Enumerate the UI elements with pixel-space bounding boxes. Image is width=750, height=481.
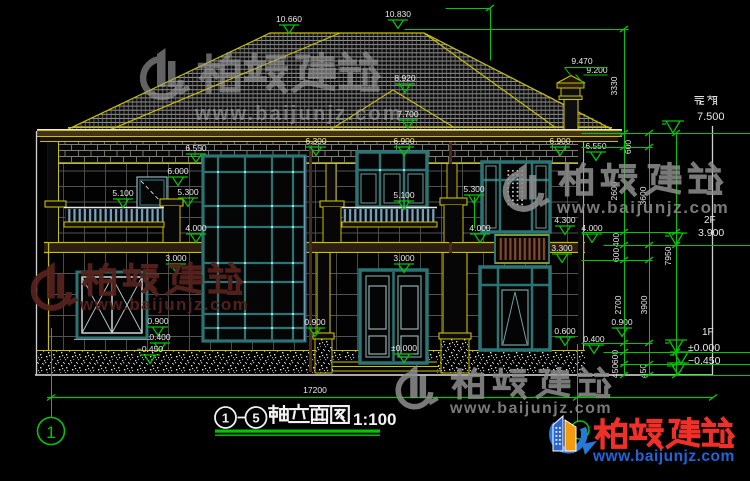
svg-text:3.000: 3.000: [165, 253, 187, 263]
svg-text:6.900: 6.900: [393, 136, 415, 146]
svg-text:3900: 3900: [639, 295, 649, 314]
svg-text:www.baijunjz.com: www.baijunjz.com: [79, 295, 249, 314]
svg-text:www.baijunjz.com: www.baijunjz.com: [449, 400, 612, 417]
svg-text:10.660: 10.660: [276, 14, 302, 24]
svg-text:17200: 17200: [303, 385, 327, 395]
svg-text:3.900: 3.900: [698, 227, 724, 239]
svg-text:6.550: 6.550: [585, 141, 607, 151]
svg-text:www.baijunjz.com: www.baijunjz.com: [556, 198, 729, 217]
svg-text:−0.450: −0.450: [688, 355, 721, 367]
svg-text:0.900: 0.900: [147, 316, 169, 326]
svg-text:5.300: 5.300: [463, 184, 485, 194]
svg-text:1: 1: [46, 423, 55, 442]
svg-text:0.600: 0.600: [554, 326, 576, 336]
svg-text:10.830: 10.830: [385, 9, 411, 19]
svg-text:400: 400: [611, 233, 621, 247]
svg-text:0.400: 0.400: [149, 332, 171, 342]
svg-text:450: 450: [610, 364, 620, 378]
svg-text:3.300: 3.300: [551, 243, 573, 253]
svg-text:www.baijunjz.com: www.baijunjz.com: [592, 448, 735, 465]
svg-text:600: 600: [611, 248, 621, 262]
svg-text:600: 600: [610, 350, 620, 364]
svg-text:1:100: 1:100: [353, 410, 396, 429]
svg-text:1F: 1F: [702, 327, 714, 338]
svg-text:4.000: 4.000: [185, 223, 207, 233]
svg-text:±0.000: ±0.000: [391, 343, 417, 353]
svg-text:6.000: 6.000: [167, 166, 189, 176]
svg-text:6.900: 6.900: [549, 136, 571, 146]
svg-text:5: 5: [252, 411, 259, 426]
svg-text:6.550: 6.550: [185, 143, 207, 153]
svg-text:1: 1: [222, 411, 229, 426]
svg-text:0.400: 0.400: [583, 334, 605, 344]
svg-text:5.100: 5.100: [112, 188, 134, 198]
svg-text:5.300: 5.300: [177, 187, 199, 197]
svg-text:4.000: 4.000: [469, 223, 491, 233]
svg-text:3330: 3330: [609, 76, 619, 95]
svg-text:4.000: 4.000: [581, 223, 603, 233]
svg-text:7950: 7950: [663, 246, 673, 265]
svg-text:3.000: 3.000: [393, 253, 415, 263]
svg-text:6.300: 6.300: [305, 136, 327, 146]
svg-text:5.100: 5.100: [393, 190, 415, 200]
svg-text:0.900: 0.900: [304, 317, 326, 327]
svg-text:0.900: 0.900: [611, 317, 633, 327]
svg-text:2700: 2700: [613, 295, 623, 314]
svg-text:7.500: 7.500: [697, 111, 725, 123]
svg-text:8.920: 8.920: [394, 73, 416, 83]
svg-text:www.baijunjz.com: www.baijunjz.com: [194, 103, 403, 125]
svg-text:9.200: 9.200: [586, 65, 608, 75]
svg-text:−0.450: −0.450: [137, 344, 164, 354]
